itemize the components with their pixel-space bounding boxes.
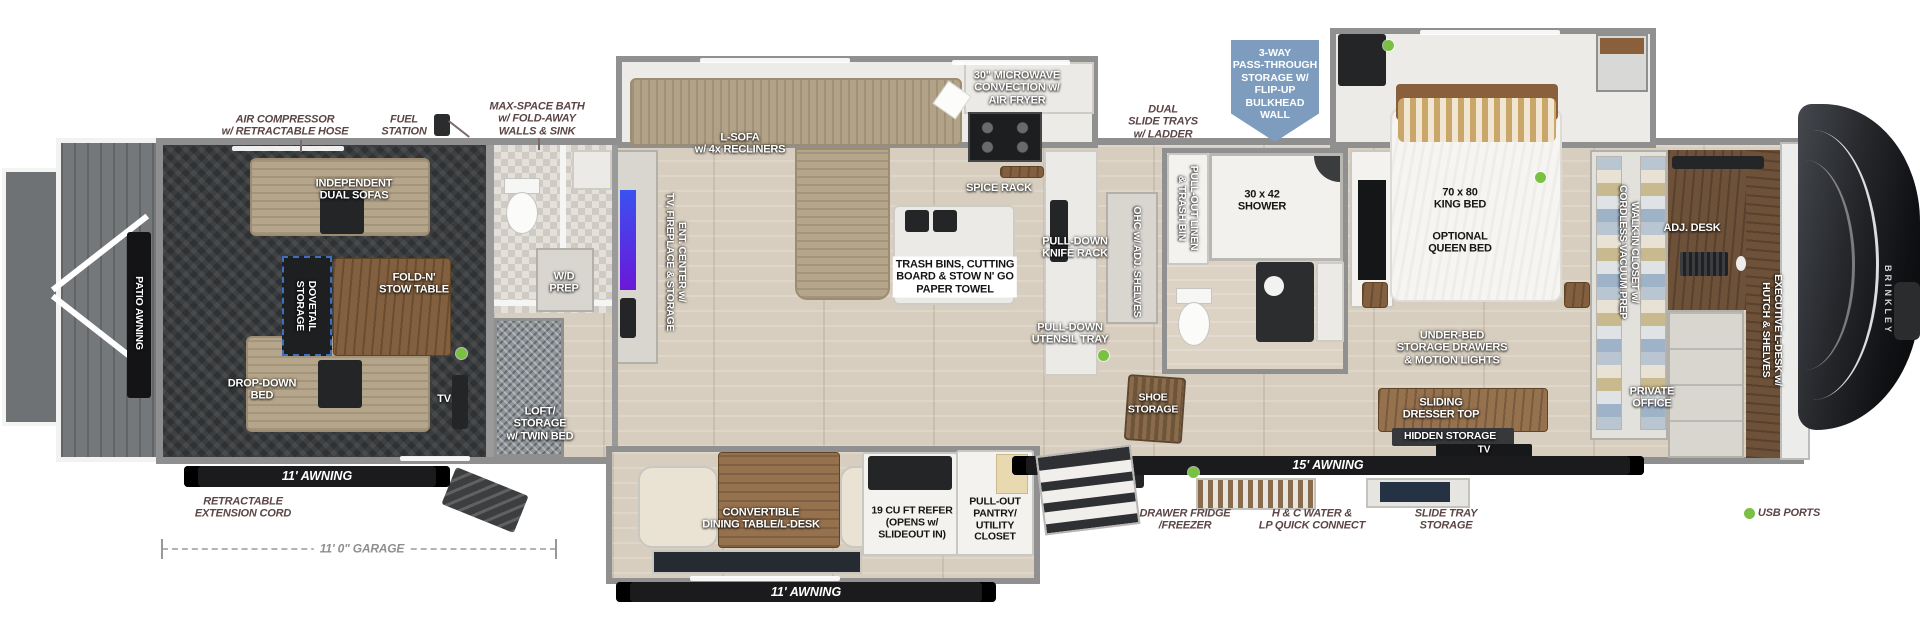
slide-topper (400, 456, 470, 461)
dual-slide-trays-label: DUAL SLIDE TRAYS w/ LADDER (1128, 104, 1198, 141)
mid-wall (612, 145, 618, 457)
garage-tv-label: TV (437, 393, 451, 405)
slide-tray-storage-label: SLIDE TRAY STORAGE (1415, 508, 1478, 533)
air-compressor-label: AIR COMPRESSOR w/ RETRACTABLE HOSE (222, 114, 349, 139)
bedroom-tv-label: TV (1478, 444, 1490, 455)
ent-center-label: ENT. CENTER w/ TV, FIREPLACE & STORAGE (664, 193, 688, 331)
usb-port-dot (1188, 467, 1199, 478)
ohc-label: OHC w/ ADJ. SHELVES (1131, 206, 1143, 317)
hidden-storage-label: HIDDEN STORAGE (1404, 431, 1496, 443)
drawer-fridge-label: DRAWER FRIDGE /FREEZER (1140, 508, 1231, 533)
loft-storage-label: LOFT/ STORAGE w/ TWIN BED (507, 406, 574, 443)
linen-label: PULL-OUT LINEN & TRASH BIN (1176, 166, 1200, 251)
slide-tray (1196, 478, 1316, 510)
dinette-awning-label: 11' AWNING (771, 585, 841, 599)
pass-through-door (1358, 180, 1386, 280)
adj-desk-label: ADJ. DESK (1664, 222, 1721, 234)
slide-topper (1420, 30, 1560, 35)
usb-port-dot (1098, 350, 1109, 361)
keyboard (1680, 252, 1728, 276)
bath-counter (1316, 262, 1344, 342)
leader-line (538, 138, 540, 150)
fold-away-wall (560, 145, 566, 265)
exec-desk-label: EXECUTIVE L-DESK w/ HUTCH & SHELVES (1760, 274, 1784, 386)
queen-opt-label: OPTIONAL QUEEN BED (1428, 231, 1492, 256)
microwave-label: 30" MICROWAVE CONVECTION w/ AIR FRYER (974, 70, 1060, 107)
dresser-label: SLIDING DRESSER TOP (1403, 397, 1479, 422)
mid-sink (572, 150, 612, 190)
mid-toilet-bowl (506, 192, 538, 234)
side-door-steps (441, 467, 528, 533)
slide-tray-screen (1380, 482, 1450, 502)
slide-topper (700, 58, 850, 63)
garage-dimension-label: 11' 0" GARAGE (314, 542, 410, 555)
garage-wall (486, 145, 494, 457)
island-trash-bins (933, 210, 957, 232)
drop-down-bed-label: DROP-DOWN BED (228, 378, 296, 403)
kingpin (1894, 282, 1920, 340)
nightstand (1564, 282, 1590, 308)
slide-topper (690, 576, 840, 581)
wd-prep-label: W/D PREP (549, 271, 578, 296)
slide-topper (952, 60, 1070, 65)
rv-floorplan-diagram: PATIO AWNING (0, 0, 1920, 634)
dovetail-label: DOVETAIL STORAGE (294, 281, 318, 332)
dimension-tick (555, 539, 557, 559)
window-blind (1600, 38, 1644, 54)
dinette-awning-bar: 11' AWNING (616, 582, 996, 602)
dimension-tick (161, 539, 163, 559)
shoe-storage-label: SHOE STORAGE (1128, 392, 1178, 416)
dining-table-label: CONVERTIBLE DINING TABLE/L-DESK (702, 507, 820, 532)
slide-topper (232, 146, 344, 151)
bedroom-slide-tv (1338, 34, 1386, 86)
walk-in-closet-label: WALK-IN CLOSET w/ CORDLESS VACUUM PREP (1617, 185, 1641, 319)
max-space-bath-label: MAX-SPACE BATH w/ FOLD-AWAY WALLS & SINK (489, 101, 584, 138)
vanity-sink (1264, 276, 1284, 296)
garage-awning-label: 11' AWNING (282, 469, 352, 483)
fuel-station-label: FUEL STATION (381, 114, 426, 139)
patio-awning-label: PATIO AWNING (133, 276, 145, 350)
garage-awning-bar: 11' AWNING (184, 466, 450, 487)
utensil-tray-label: PULL-DOWN UTENSIL TRAY (1032, 322, 1108, 347)
refrigerator-drawers (868, 456, 952, 490)
usb-legend-dot (1744, 508, 1755, 519)
under-bed-label: UNDER-BED STORAGE DRAWERS & MOTION LIGHT… (1397, 330, 1507, 367)
leader-line (300, 140, 302, 152)
l-sofa-top (630, 78, 962, 146)
pantry-label: PULL-OUT PANTRY/ UTILITY CLOSET (969, 497, 1020, 544)
fuel-pump-icon (434, 114, 450, 136)
solar-mat (652, 550, 862, 574)
toilet-bowl (1178, 302, 1210, 346)
usb-port-dot (456, 348, 467, 359)
garage-tv-panel (452, 375, 468, 429)
hutch-cabinets (1668, 310, 1744, 458)
entry-steps-ladder (1035, 444, 1140, 535)
garage-sofa-console (318, 360, 362, 408)
usb-port-dot (1383, 40, 1394, 51)
private-office-label: PRIVATE OFFICE (1630, 386, 1675, 411)
shower-label: 30 x 42 SHOWER (1238, 189, 1286, 214)
usb-ports-label: USB PORTS (1758, 507, 1820, 519)
l-sofa-label: L-SOFA w/ 4x RECLINERS (695, 132, 786, 157)
island-trash-bins (905, 210, 929, 232)
spice-rack-shelf (1000, 166, 1044, 178)
knife-rack-label: PULL-DOWN KNIFE RACK (1042, 236, 1108, 261)
refer-label: 19 CU FT REFER (OPENS w/ SLIDEOUT IN) (871, 505, 952, 540)
water-lp-label: H & C WATER & LP QUICK CONNECT (1259, 508, 1365, 533)
bath-vanity (1256, 262, 1314, 342)
spice-rack-label: SPICE RACK (966, 182, 1032, 194)
nightstand (1362, 282, 1388, 308)
leader-line (448, 120, 470, 138)
dining-table (718, 452, 840, 548)
bed-blanket (1398, 98, 1556, 142)
king-bed-label: 70 x 80 KING BED (1434, 187, 1486, 212)
monitor (1672, 156, 1764, 169)
retractable-cord-label: RETRACTABLE EXTENSION CORD (195, 496, 291, 521)
dual-sofas-label: INDEPENDENT DUAL SOFAS (316, 178, 393, 203)
fireplace (620, 298, 636, 338)
fold-table-label: FOLD-N' STOW TABLE (379, 272, 449, 297)
usb-port-dot (1535, 172, 1546, 183)
brand-logo: BRINKLEY (1883, 265, 1893, 335)
pass-through-badge: 3-WAY PASS-THROUGH STORAGE W/ FLIP-UP BU… (1231, 40, 1319, 142)
mouse (1736, 256, 1746, 271)
range-cooktop (968, 112, 1042, 162)
fireplace-tv-screen (620, 190, 636, 290)
main-awning-label: 15' AWNING (1292, 458, 1363, 472)
trash-bins-label: TRASH BINS, CUTTING BOARD & STOW N' GO P… (893, 257, 1017, 298)
l-sofa-return (795, 148, 890, 300)
